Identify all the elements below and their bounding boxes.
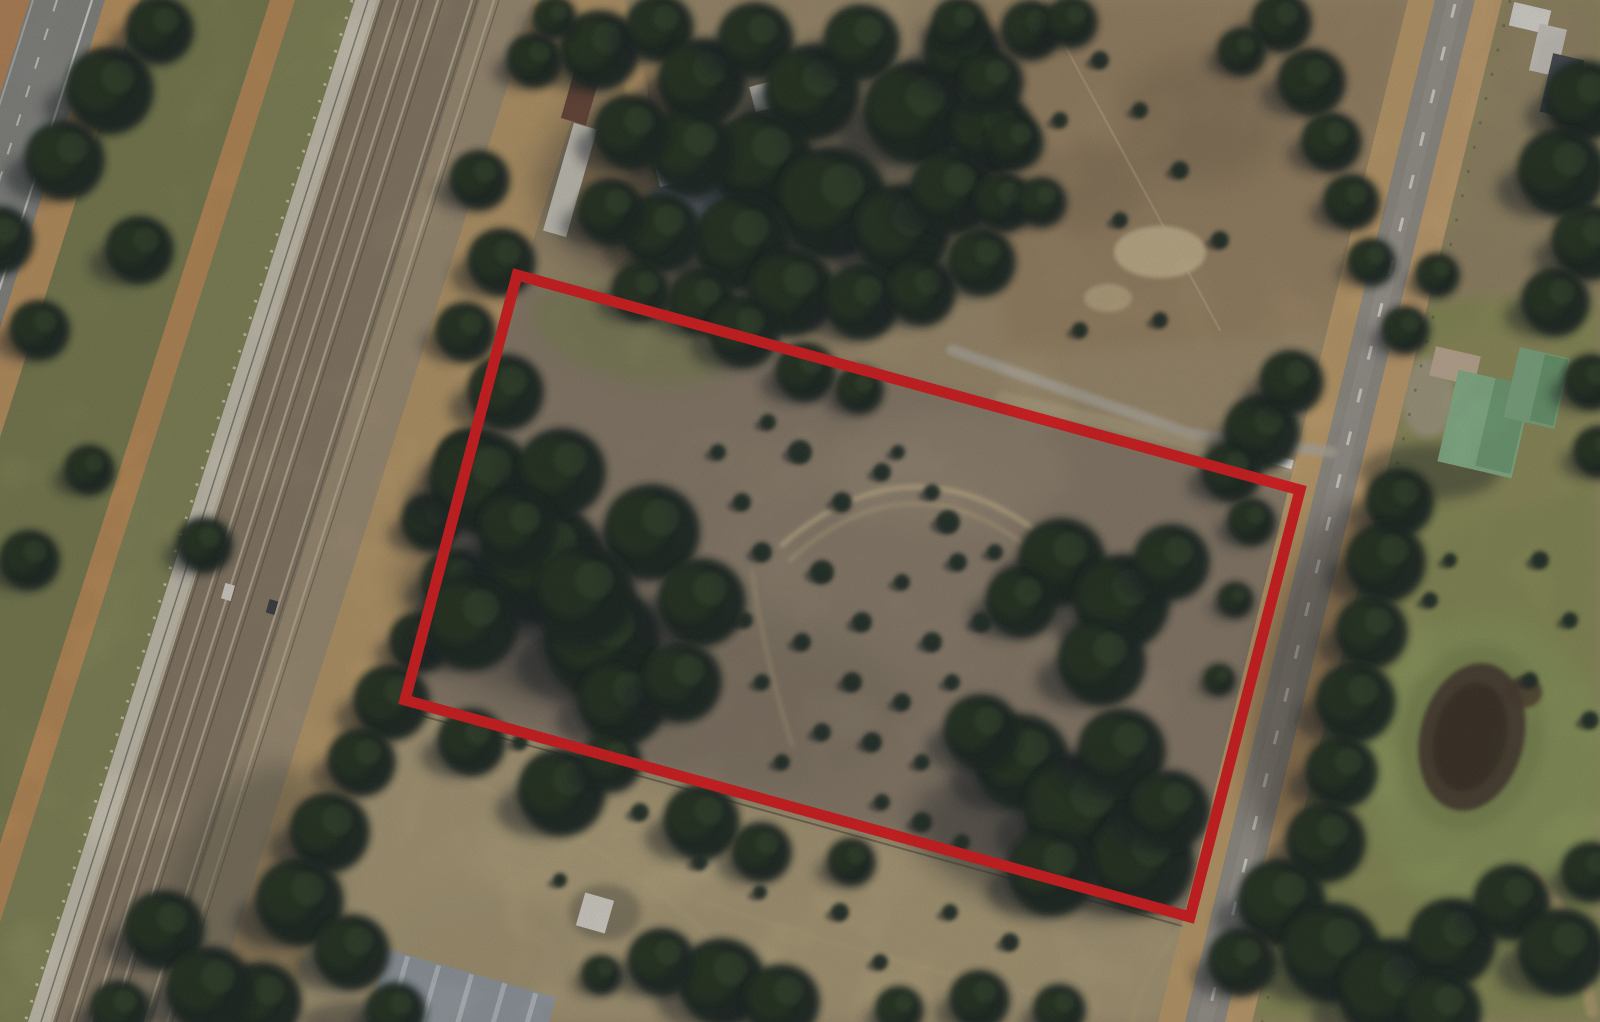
photo-grain-light [0,0,1600,1022]
aerial-photo [0,0,1600,1022]
satellite-scene [0,0,1600,1022]
